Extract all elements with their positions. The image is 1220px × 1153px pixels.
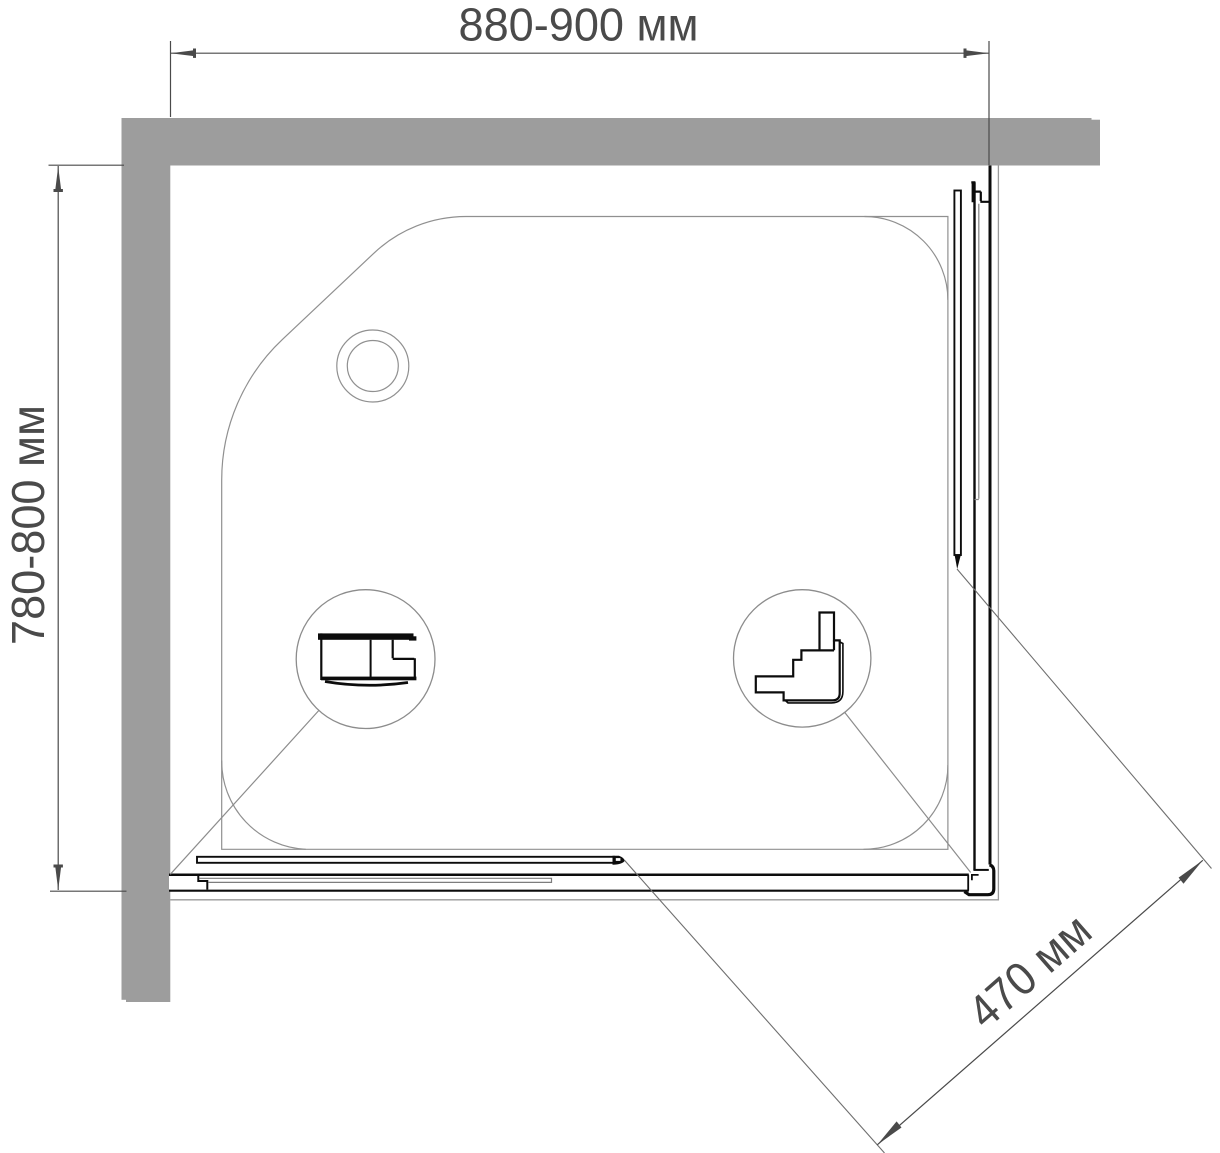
svg-text:780-800 мм: 780-800 мм xyxy=(2,405,54,645)
svg-text:880-900 мм: 880-900 мм xyxy=(459,0,699,51)
